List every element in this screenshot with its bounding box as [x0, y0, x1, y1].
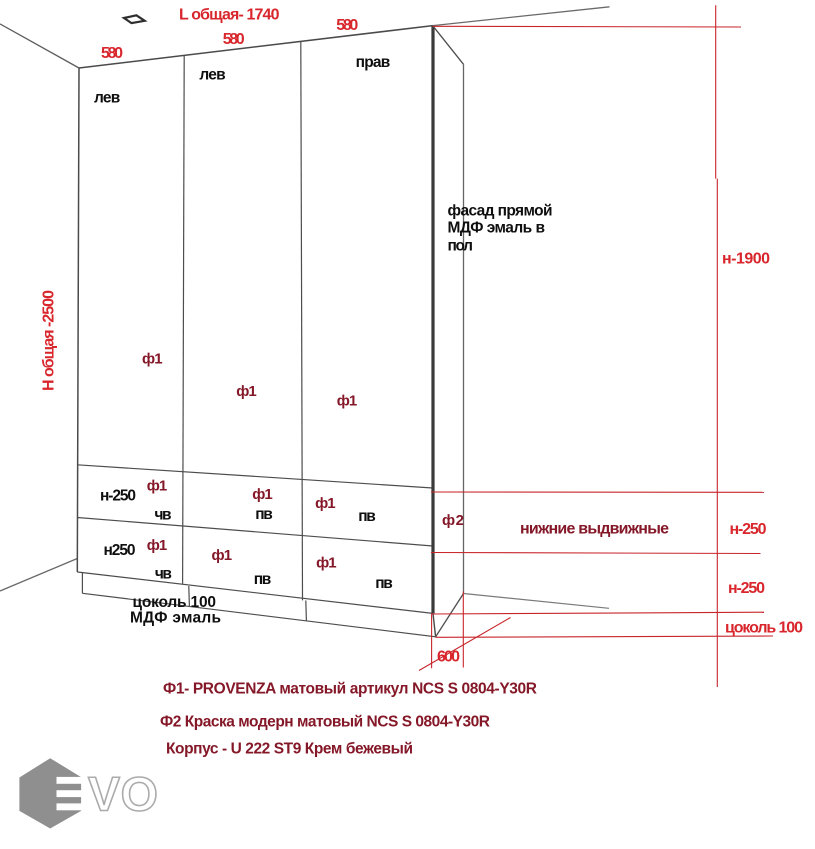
svg-text:ф1: ф1	[337, 392, 358, 409]
svg-text:580: 580	[101, 45, 123, 62]
svg-text:пол: пол	[448, 238, 474, 255]
svg-text:ф1: ф1	[147, 478, 168, 495]
svg-text:н-250: н-250	[100, 487, 136, 504]
svg-text:цоколь 100: цоколь 100	[133, 594, 217, 611]
svg-text:пв: пв	[375, 575, 393, 592]
svg-text:L общая- 1740: L общая- 1740	[179, 7, 280, 24]
svg-text:пв: пв	[254, 571, 272, 588]
svg-text:ф1: ф1	[142, 350, 163, 367]
svg-text:фасад прямой: фасад прямой	[448, 203, 553, 220]
svg-text:ф1: ф1	[315, 495, 336, 512]
svg-text:н250: н250	[104, 542, 136, 559]
svg-text:ф1: ф1	[252, 486, 273, 503]
svg-text:цоколь 100: цоколь 100	[725, 620, 803, 637]
svg-text:н-250: н-250	[728, 580, 765, 597]
svg-text:ф1: ф1	[147, 537, 168, 554]
svg-text:580: 580	[223, 31, 245, 48]
svg-text:МДФ эмаль в: МДФ эмаль в	[448, 220, 546, 237]
svg-text:МДФ эмаль: МДФ эмаль	[130, 610, 221, 627]
svg-text:н-1900: н-1900	[722, 251, 770, 268]
svg-text:ф2: ф2	[442, 512, 464, 529]
svg-text:Н общая -2500: Н общая -2500	[41, 290, 58, 391]
svg-text:ф1: ф1	[212, 547, 233, 564]
svg-text:лев: лев	[199, 66, 225, 83]
svg-text:Ф1- PROVENZA матовый артикул N: Ф1- PROVENZA матовый артикул NCS S 0804-…	[163, 681, 537, 698]
svg-text:600: 600	[437, 649, 460, 666]
svg-text:ф1: ф1	[316, 555, 337, 572]
svg-text:пв: пв	[358, 508, 376, 525]
svg-text:н-250: н-250	[730, 521, 767, 538]
svg-text:нижние выдвижные: нижние выдвижные	[520, 521, 669, 538]
svg-text:пв: пв	[255, 506, 273, 523]
svg-text:Корпус - U 222 ST9 Крем бежевы: Корпус - U 222 ST9 Крем бежевый	[166, 741, 413, 758]
svg-text:чв: чв	[155, 565, 172, 582]
svg-text:чв: чв	[155, 507, 172, 524]
svg-text:VO: VO	[88, 769, 158, 822]
svg-text:лев: лев	[94, 90, 120, 107]
svg-text:580: 580	[336, 17, 358, 34]
svg-text:ф1: ф1	[236, 383, 257, 400]
svg-text:Ф2 Краска модерн матовый NCS S: Ф2 Краска модерн матовый NCS S 0804-Y30R	[160, 714, 490, 731]
svg-text:прав: прав	[356, 54, 391, 71]
